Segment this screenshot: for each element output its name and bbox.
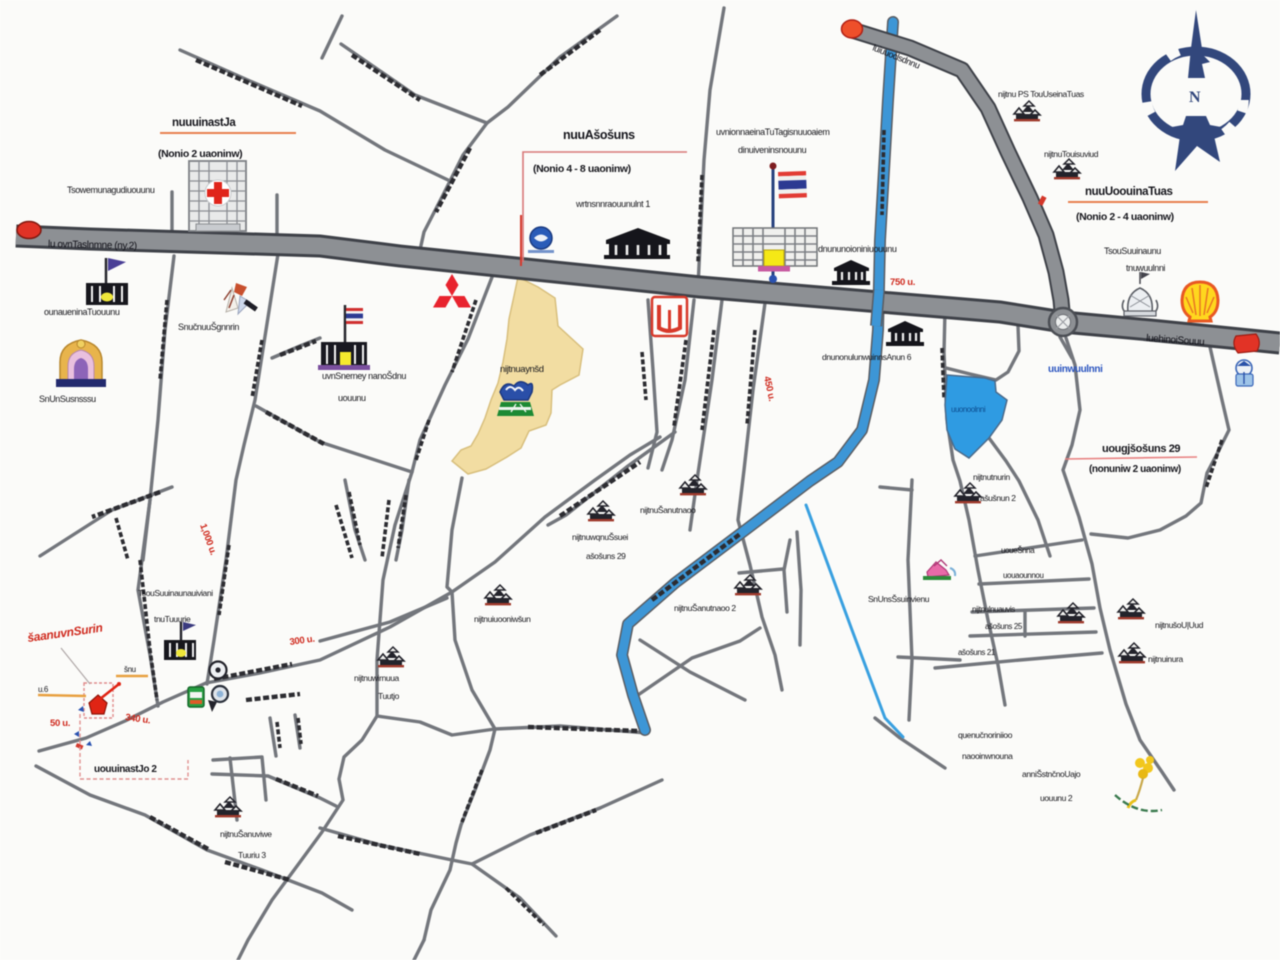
svg-text:anniŠstnčnoUajo: anniŠstnčnoUajo bbox=[1022, 769, 1081, 779]
svg-text:nijtnuaynšd: nijtnuaynšd bbox=[500, 364, 544, 375]
svg-text:nijtnuŠanutnaoo: nijtnuŠanutnaoo bbox=[640, 505, 696, 515]
svg-text:uouunu 2: uouunu 2 bbox=[1040, 793, 1073, 803]
svg-text:tnuTuuurie: tnuTuuurie bbox=[154, 614, 191, 624]
svg-text:Tuuriu 3: Tuuriu 3 bbox=[238, 850, 266, 860]
svg-text:TsouSuuinaunu: TsouSuuinaunu bbox=[1104, 246, 1161, 256]
svg-text:nuuUoouinaTuas: nuuUoouinaTuas bbox=[1085, 186, 1172, 198]
svg-text:nijtnušoU|Uud: nijtnušoU|Uud bbox=[1155, 620, 1204, 630]
svg-text:uvnSnerney nanoŠdnu: uvnSnerney nanoŠdnu bbox=[322, 371, 406, 381]
svg-text:SnučnuuŠgnnrin: SnučnuuŠgnnrin bbox=[178, 322, 239, 332]
svg-text:TsouSuuinaunauiviani: TsouSuuinaunauiviani bbox=[138, 588, 213, 598]
svg-text:ašošuns 25: ašošuns 25 bbox=[985, 622, 1023, 631]
svg-text:nijtnuiuooniwšun: nijtnuiuooniwšun bbox=[474, 614, 531, 624]
svg-text:uuonoolnni: uuonoolnni bbox=[951, 405, 986, 414]
svg-text:N: N bbox=[1189, 89, 1201, 106]
svg-text:naooinwnouna: naooinwnouna bbox=[962, 751, 1013, 761]
svg-text:uouunu: uouunu bbox=[338, 393, 366, 403]
svg-text:nuuAšošuns: nuuAšošuns bbox=[563, 128, 635, 142]
svg-text:Tuutjo: Tuutjo bbox=[378, 691, 400, 701]
svg-text:wrtnsnnraouunulnt 1: wrtnsnnraouunulnt 1 bbox=[575, 199, 650, 209]
svg-text:ašošuns 29: ašošuns 29 bbox=[586, 551, 626, 561]
svg-text:dnunonulunwuinnsAnun 6: dnunonulunwuinnsAnun 6 bbox=[822, 352, 912, 362]
svg-text:SnUnsŠsuinvienu: SnUnsŠsuinvienu bbox=[868, 594, 930, 604]
svg-text:ašošuns 21: ašošuns 21 bbox=[958, 648, 996, 657]
svg-text:nijtnuŠanuviwe: nijtnuŠanuviwe bbox=[220, 829, 272, 839]
svg-text:ounaueninaTuouunu: ounaueninaTuouunu bbox=[44, 307, 120, 317]
svg-text:uougjšošuns 29: uougjšošuns 29 bbox=[1102, 443, 1180, 455]
svg-text:(Nonio 4 - 8 uaoninw): (Nonio 4 - 8 uaoninw) bbox=[533, 163, 631, 175]
svg-text:(nonuniw 2 uaoninw): (nonuniw 2 uaoninw) bbox=[1089, 464, 1181, 475]
svg-text:lu ovnTaslnmne (ny.2): lu ovnTaslnmne (ny.2) bbox=[48, 239, 137, 252]
svg-text:nijtnuinura: nijtnuinura bbox=[1148, 654, 1183, 664]
svg-text:uouuinastJo 2: uouuinastJo 2 bbox=[94, 764, 157, 775]
svg-text:(Nonio 2 - 4 uaoninw): (Nonio 2 - 4 uaoninw) bbox=[1076, 211, 1174, 223]
svg-text:nijtnuTouisuviud: nijtnuTouisuviud bbox=[1044, 149, 1099, 159]
svg-text:50 u.: 50 u. bbox=[50, 718, 70, 729]
svg-text:nijtnulnuauvis: nijtnulnuauvis bbox=[972, 605, 1015, 614]
svg-text:nuuuinastJa: nuuuinastJa bbox=[172, 117, 236, 129]
svg-text:(Nonio 2 uaoninw): (Nonio 2 uaoninw) bbox=[158, 148, 242, 160]
svg-text:nijtnutnurin: nijtnutnurin bbox=[973, 472, 1010, 482]
svg-text:tnuwuulnni: tnuwuulnni bbox=[1126, 263, 1165, 273]
svg-text:nijtnuŠanutnaoo 2: nijtnuŠanutnaoo 2 bbox=[674, 603, 736, 613]
svg-text:SnUnSusnsssu: SnUnSusnsssu bbox=[39, 394, 96, 404]
svg-text:u.6: u.6 bbox=[38, 685, 49, 694]
svg-text:uuinwuulnni: uuinwuulnni bbox=[1048, 364, 1103, 375]
svg-text:dnununoioniniuouunu: dnununoioniniuouunu bbox=[818, 244, 897, 254]
svg-text:uvnionnaeinaTuTagisnuuoaiem: uvnionnaeinaTuTagisnuuoaiem bbox=[716, 127, 829, 137]
svg-text:dinuiveninsnouunu: dinuiveninsnouunu bbox=[738, 145, 807, 155]
svg-text:nijtnuwirnuua: nijtnuwirnuua bbox=[354, 673, 400, 683]
svg-text:ašušnun 2: ašušnun 2 bbox=[980, 493, 1016, 503]
svg-text:quenučnoriniioo: quenučnoriniioo bbox=[958, 730, 1013, 740]
svg-text:nijtnuwqnuŠsuei: nijtnuwqnuŠsuei bbox=[572, 532, 628, 542]
svg-text:Tsowemunagudiuouunu: Tsowemunagudiuouunu bbox=[67, 185, 155, 195]
svg-text:uoueŠnna: uoueŠnna bbox=[1001, 546, 1035, 555]
svg-text:šnu: šnu bbox=[124, 665, 136, 674]
svg-text:nijtnu PS TouUseinaTuas: nijtnu PS TouUseinaTuas bbox=[998, 89, 1084, 99]
svg-text:750 u.: 750 u. bbox=[890, 277, 915, 288]
svg-text:uouaounnou: uouaounnou bbox=[1003, 571, 1044, 580]
